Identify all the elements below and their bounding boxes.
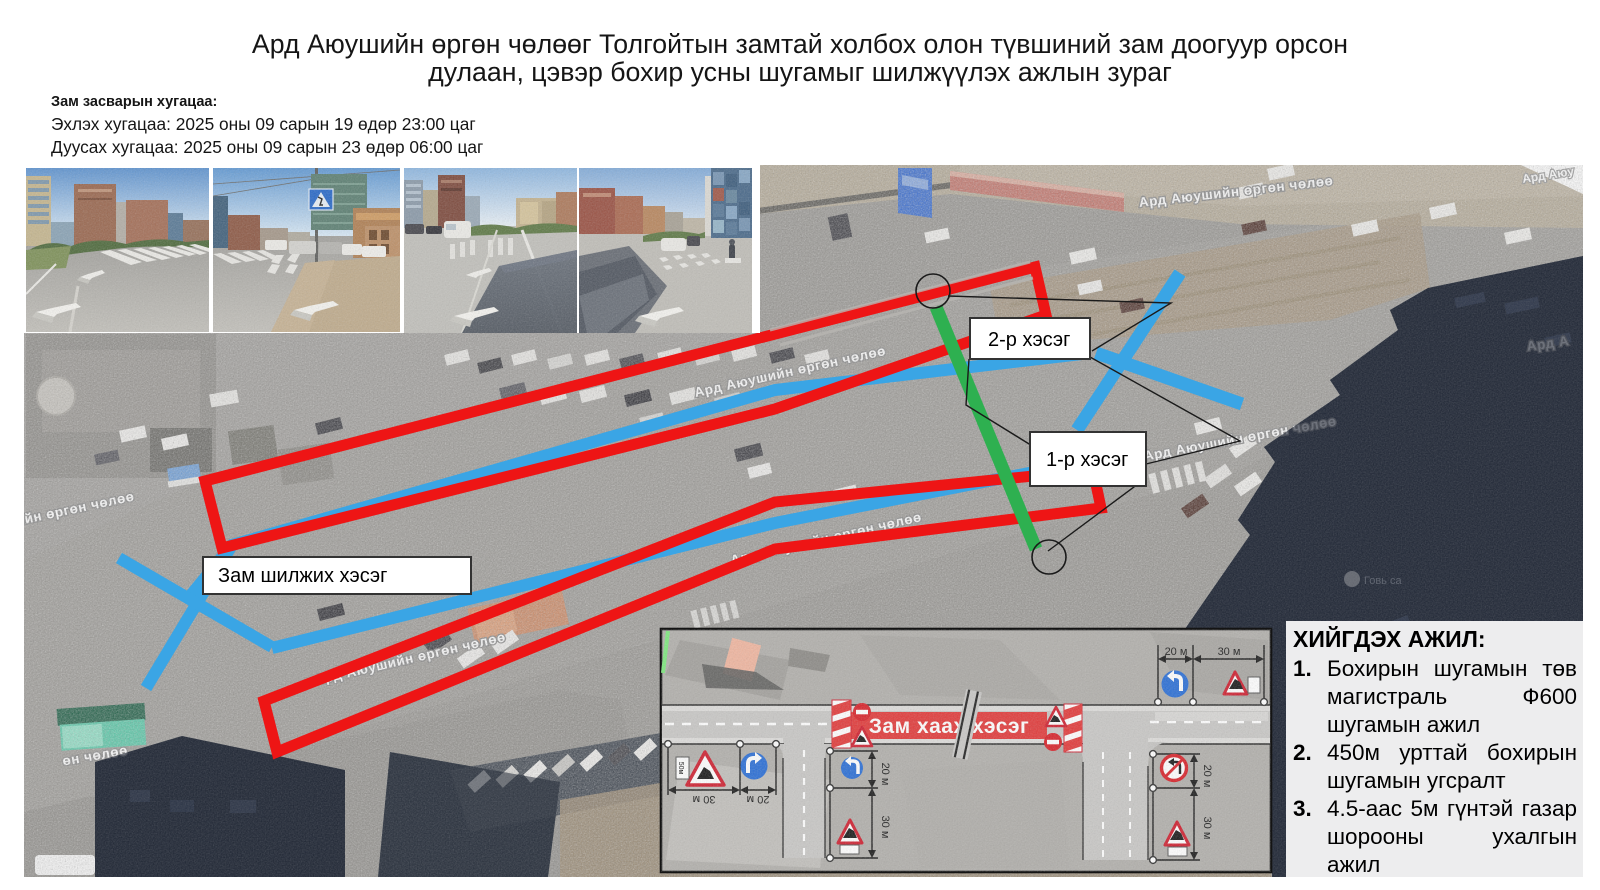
svg-text:1-р хэсэг: 1-р хэсэг xyxy=(1046,449,1128,471)
svg-text:2-р хэсэг: 2-р хэсэг xyxy=(988,329,1070,351)
svg-text:Зам шилжих хэсэг: Зам шилжих хэсэг xyxy=(218,565,387,587)
